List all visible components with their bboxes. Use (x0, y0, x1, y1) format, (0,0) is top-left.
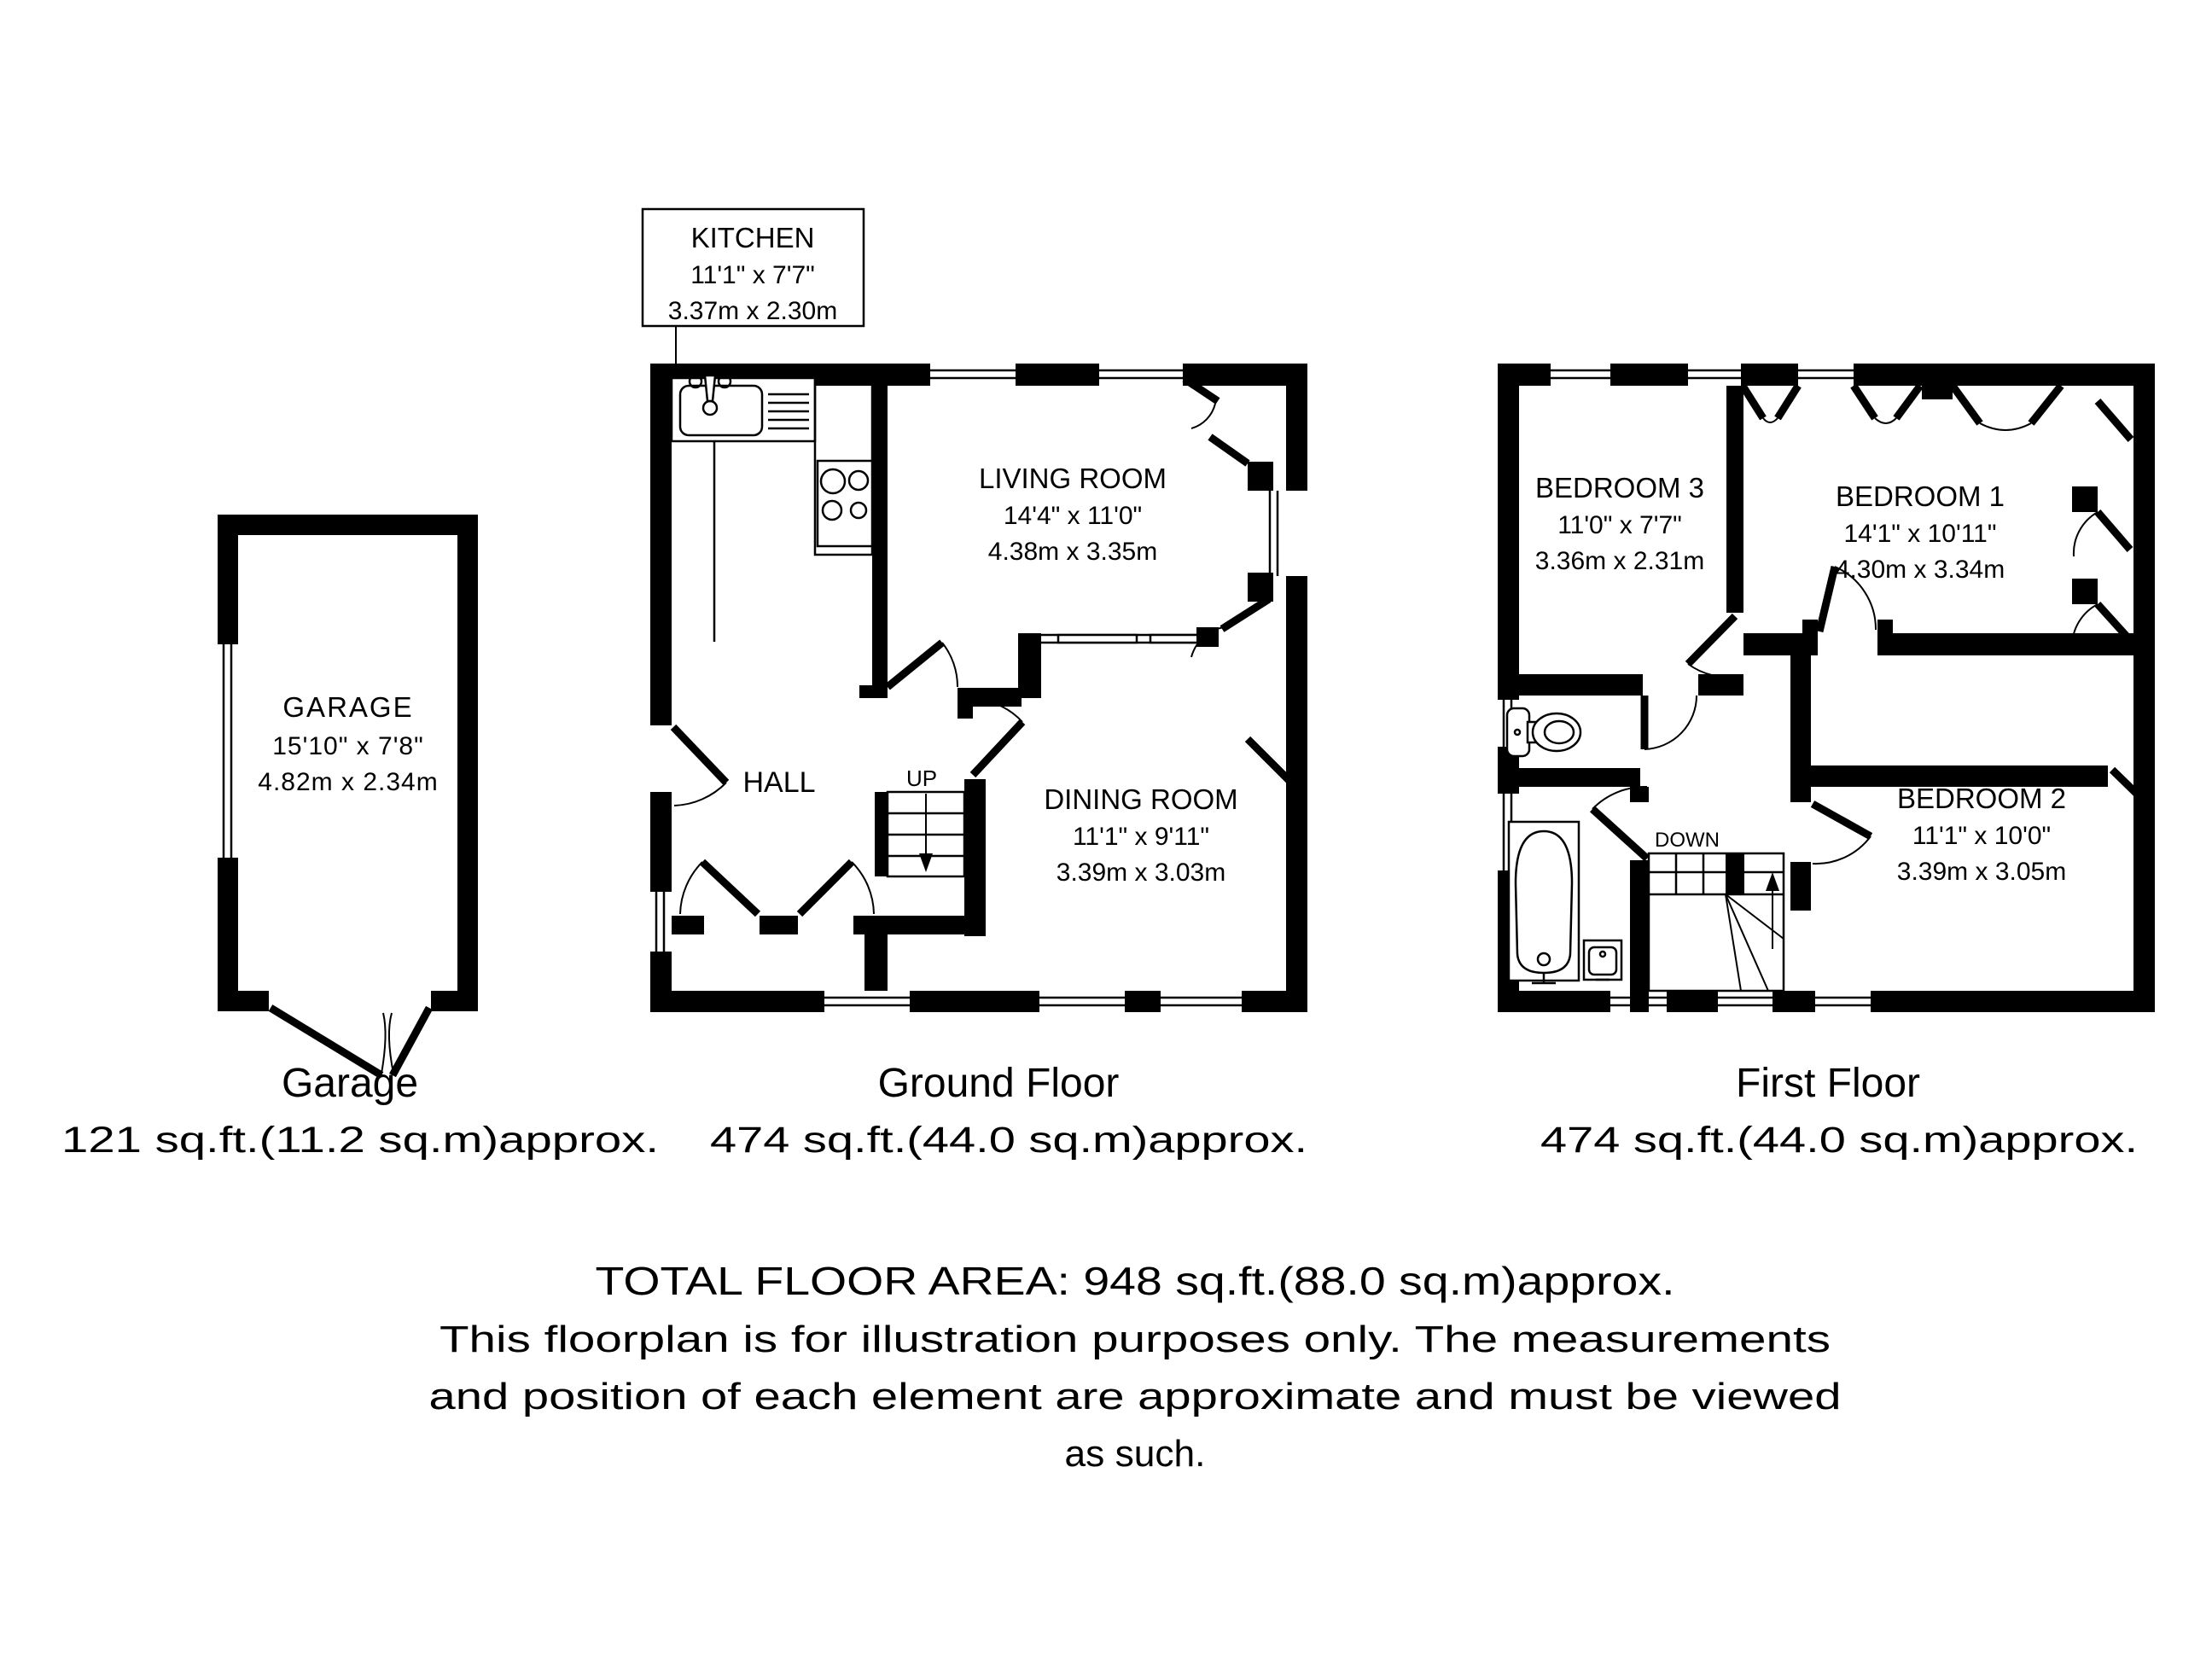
bedroom1-window-details (1743, 384, 2061, 430)
bedroom2-label: BEDROOM 2 11'1" x 10'0" 3.39m x 3.05m (1897, 783, 2066, 886)
stairs-up-label: UP (906, 765, 937, 791)
bed1-bottom-wall (1743, 633, 1818, 655)
toilet (1507, 708, 1580, 756)
kitchen-dims-imperial: 11'1" x 7'7" (690, 261, 815, 289)
svg-text:11'0" x 7'7": 11'0" x 7'7" (1557, 511, 1682, 539)
wc-bottom-wall (1498, 768, 1640, 787)
ground-floor-caption-title: Ground Floor (878, 1061, 1120, 1106)
stairs-down-label: DOWN (1655, 829, 1720, 852)
bathroom-stair-wall (1630, 787, 1649, 802)
stairs-up: UP (875, 765, 986, 936)
svg-text:11'1" x 10'0": 11'1" x 10'0" (1912, 822, 2051, 850)
disclaimer-line1: This floorplan is for illustration purpo… (439, 1318, 1831, 1360)
ground-floor-left-window (650, 892, 672, 952)
svg-text:14'4" x 11'0": 14'4" x 11'0" (1004, 502, 1142, 530)
first-floor-plan: DOWN BEDROOM 3 11'0" x 7'7" 3.36m (1498, 364, 2155, 1012)
ground-floor-plan: UP (650, 364, 1307, 1012)
kitchen-name: KITCHEN (691, 222, 815, 253)
bathroom-sink (1584, 940, 1621, 980)
first-floor-top-windows (1551, 364, 1854, 386)
ground-floor-caption-area: 474 sq.ft.(44.0 sq.m)approx. (710, 1120, 1307, 1161)
garage-window (218, 644, 238, 858)
first-floor-bottom-windows (1610, 991, 1871, 1012)
total-floor-area: TOTAL FLOOR AREA: 948 sq.ft.(88.0 sq.m)a… (596, 1259, 1675, 1303)
svg-text:BEDROOM 2: BEDROOM 2 (1897, 783, 2066, 814)
svg-text:4.38m x 3.35m: 4.38m x 3.35m (988, 538, 1157, 566)
garage-name: GARAGE (282, 691, 413, 723)
kitchen-living-wall (872, 386, 888, 685)
svg-text:4.30m x 3.34m: 4.30m x 3.34m (1836, 556, 2005, 584)
garage-dims-imperial: 15'10" x 7'8" (272, 732, 424, 760)
bedroom1-label: BEDROOM 1 14'1" x 10'11" 4.30m x 3.34m (1836, 480, 2005, 584)
stairs-down: DOWN (1649, 829, 1784, 991)
living-room-label: LIVING ROOM 14'4" x 11'0" 4.38m x 3.35m (979, 463, 1167, 566)
living-dining-stub (1018, 633, 1041, 698)
svg-text:11'1" x 9'11": 11'1" x 9'11" (1073, 823, 1209, 851)
bed3-bottom-wall (1519, 674, 1643, 696)
bedroom3-door (1688, 616, 1739, 677)
svg-text:3.36m x 2.31m: 3.36m x 2.31m (1535, 547, 1704, 575)
svg-text:LIVING ROOM: LIVING ROOM (979, 463, 1167, 494)
bedroom1-wardrobe (2072, 401, 2131, 647)
living-dining-window-wall (1041, 627, 1219, 647)
garage-plan: GARAGE 15'10" x 7'8" 4.82m x 2.34m (218, 515, 478, 1075)
svg-text:DINING ROOM: DINING ROOM (1044, 783, 1237, 815)
garage-dims-metric: 4.82m x 2.34m (258, 768, 438, 796)
disclaimer-line3: as such. (1065, 1433, 1206, 1475)
floorplan-page: GARAGE 15'10" x 7'8" 4.82m x 2.34m KITCH… (0, 0, 2212, 1659)
first-floor-caption-area: 474 sq.ft.(44.0 sq.m)approx. (1540, 1120, 2138, 1161)
bedroom2-door (1813, 804, 1871, 864)
first-floor-caption-title: First Floor (1736, 1061, 1920, 1106)
bathtub (1509, 822, 1579, 983)
floor-captions: Garage 121 sq.ft.(11.2 sq.m)approx. Grou… (61, 1061, 2138, 1161)
garage-caption-area: 121 sq.ft.(11.2 sq.m)approx. (61, 1120, 659, 1161)
hall-label: HALL (742, 766, 815, 799)
svg-text:3.39m x 3.05m: 3.39m x 3.05m (1897, 858, 2066, 886)
svg-text:3.39m x 3.03m: 3.39m x 3.03m (1057, 859, 1225, 887)
kitchen-stove (818, 461, 872, 546)
disclaimer-line2: and position of each element are approxi… (429, 1376, 1842, 1417)
bed3-bed1-wall (1726, 386, 1743, 613)
kitchen-dims-metric: 3.37m x 2.30m (668, 297, 837, 325)
dining-room-label: DINING ROOM 11'1" x 9'11" 3.39m x 3.03m (1044, 783, 1237, 887)
wc-door (1644, 696, 1697, 749)
garage-room-label: GARAGE 15'10" x 7'8" 4.82m x 2.34m (258, 691, 438, 796)
svg-text:BEDROOM 1: BEDROOM 1 (1836, 480, 2005, 512)
landing-bed2-wall (1790, 655, 1811, 802)
bedroom3-label: BEDROOM 3 11'0" x 7'7" 3.36m x 2.31m (1535, 472, 1704, 575)
kitchen-door (888, 643, 958, 687)
floorplan-drawing: GARAGE 15'10" x 7'8" 4.82m x 2.34m KITCH… (0, 0, 2212, 1659)
hall-living-wall (958, 688, 1022, 707)
footer-notes: TOTAL FLOOR AREA: 948 sq.ft.(88.0 sq.m)a… (429, 1259, 1842, 1475)
dining-door (973, 700, 1022, 775)
svg-text:BEDROOM 3: BEDROOM 3 (1535, 472, 1704, 504)
hall-bottom-walls (672, 862, 964, 991)
kitchen-sink-unit (672, 375, 815, 441)
svg-text:14'1" x 10'11": 14'1" x 10'11" (1844, 520, 1997, 548)
garage-caption-title: Garage (282, 1061, 418, 1106)
